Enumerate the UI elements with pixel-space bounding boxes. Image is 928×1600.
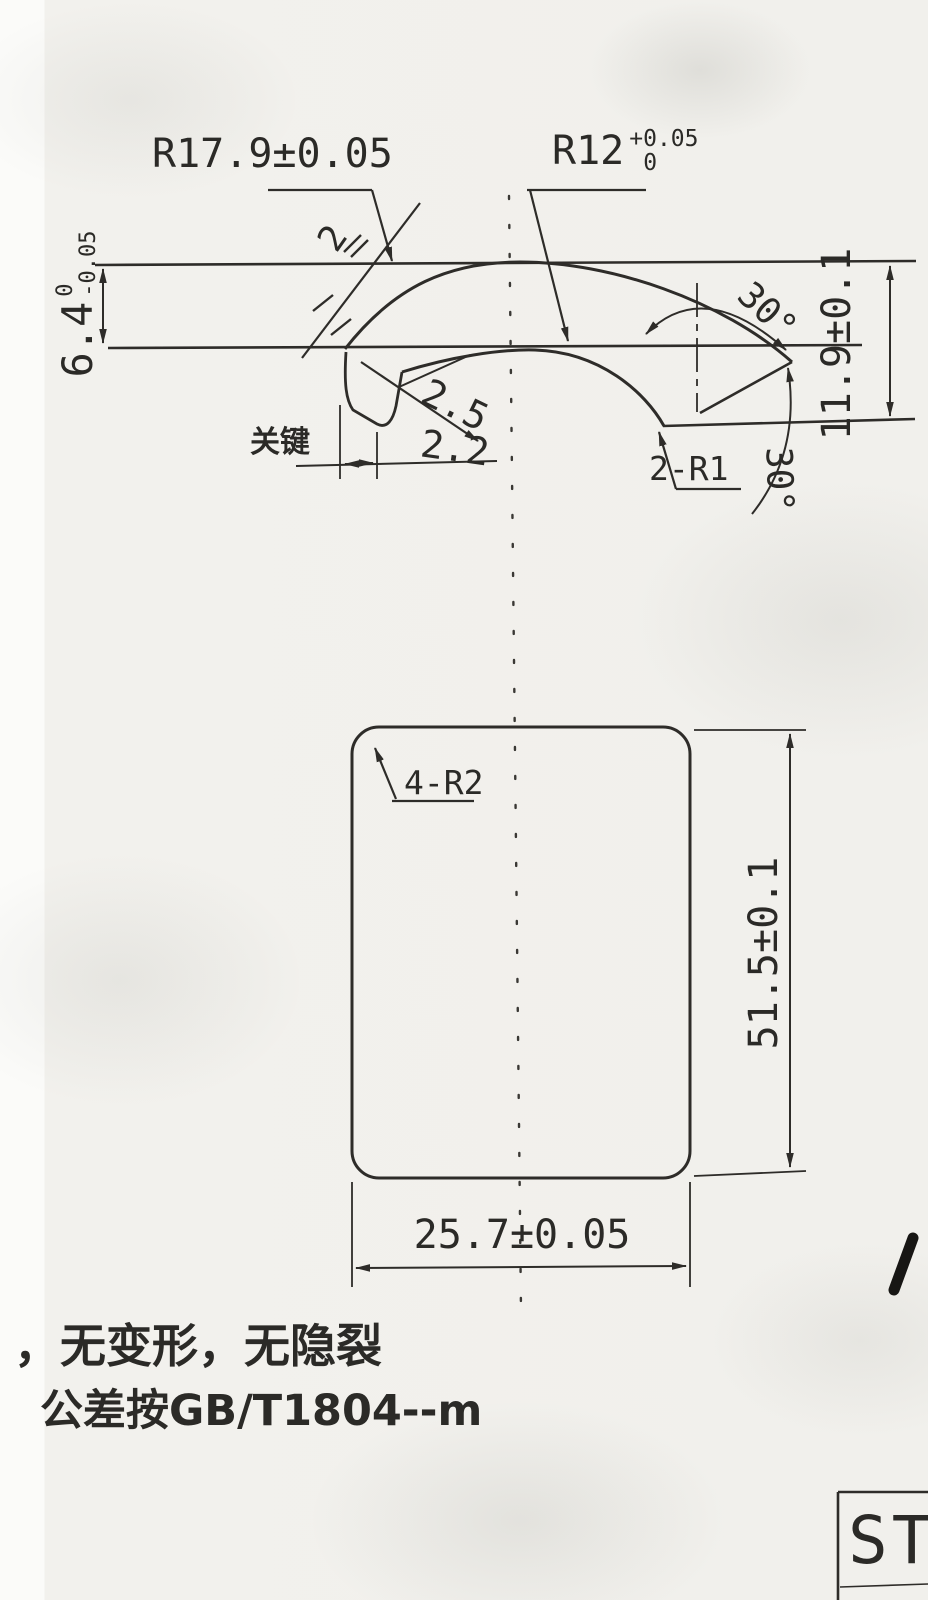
overall-height-label: 11.9±0.1: [814, 229, 860, 459]
handwritten-mark: [894, 1238, 913, 1290]
thickness-label: 6.4 0 -0.05: [49, 179, 105, 429]
inner-radius-label: R12 +0.05 0: [552, 127, 699, 175]
plan-view-lines: [352, 727, 806, 1287]
outer-radius-label: R17.9±0.05: [152, 131, 393, 177]
corner-radii-label: 4-R2: [404, 763, 483, 802]
inner-radius-value: R12: [552, 128, 624, 174]
note-line-2: 公差按GB/T1804--m: [40, 1376, 482, 1438]
tip-angle-lower-label: 30°: [757, 434, 801, 525]
scanned-engineering-drawing: R17.9±0.05 R12 +0.05 0 6.4 0 -0.05 11.9±…: [0, 0, 928, 1600]
thickness-tol-lower: -0.05: [77, 230, 100, 296]
tip-radii-label: 2-R1: [649, 449, 728, 488]
inner-radius-tol-upper: +0.05: [629, 127, 698, 151]
plan-length-label: 51.5±0.1: [741, 823, 787, 1083]
plan-width-label: 25.7±0.05: [372, 1212, 672, 1258]
center-line: [509, 196, 521, 1310]
inner-radius-tol-lower: 0: [629, 151, 698, 175]
thickness-tol-upper: 0: [54, 230, 77, 296]
key-note: 关键: [250, 417, 310, 461]
thickness-value: 6.4: [53, 302, 102, 378]
title-block-text: ST: [848, 1502, 928, 1579]
note-line-1: ，无变形，无隐裂: [14, 1310, 382, 1376]
